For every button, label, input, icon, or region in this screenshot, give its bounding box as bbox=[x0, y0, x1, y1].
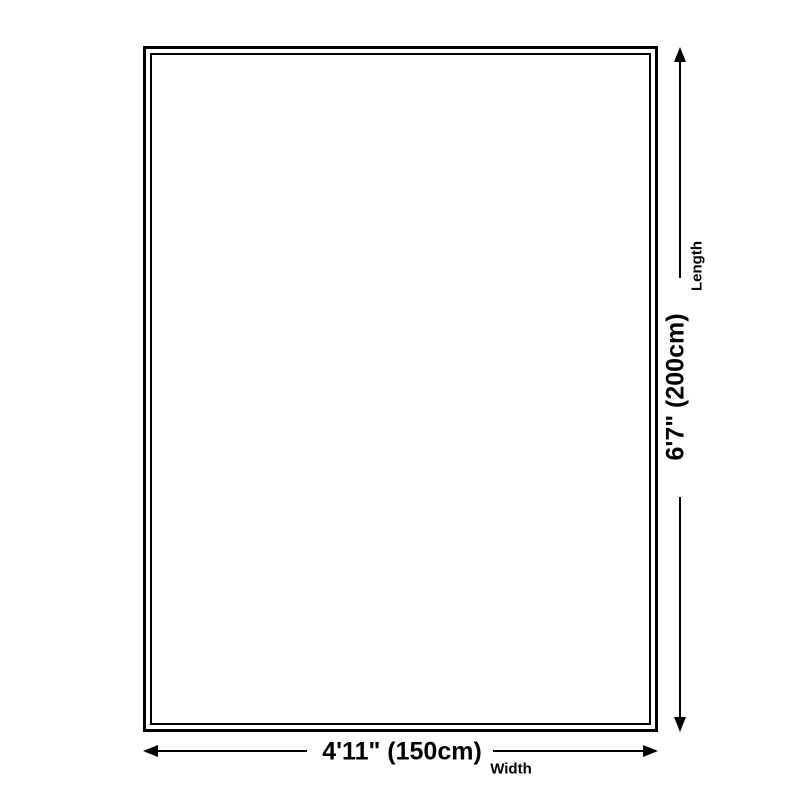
length-line-top-segment bbox=[679, 60, 681, 278]
length-line-bottom-segment bbox=[679, 497, 681, 717]
product-outline bbox=[143, 46, 658, 732]
width-dimension-value: 4'11" (150cm) bbox=[322, 738, 482, 767]
arrow-right-icon bbox=[643, 745, 658, 757]
arrow-left-icon bbox=[143, 745, 158, 757]
size-guide-diagram: Length 6'7" (200cm) 4'11" (150cm) Width bbox=[0, 0, 800, 800]
width-line-left-segment bbox=[157, 750, 307, 752]
length-dimension-label: Length bbox=[689, 241, 706, 291]
width-dimension-label: Width bbox=[490, 761, 532, 778]
arrow-down-icon bbox=[674, 717, 686, 732]
length-dimension-value: 6'7" (200cm) bbox=[662, 313, 691, 460]
product-inner-border bbox=[150, 53, 651, 725]
width-line-right-segment bbox=[493, 750, 643, 752]
